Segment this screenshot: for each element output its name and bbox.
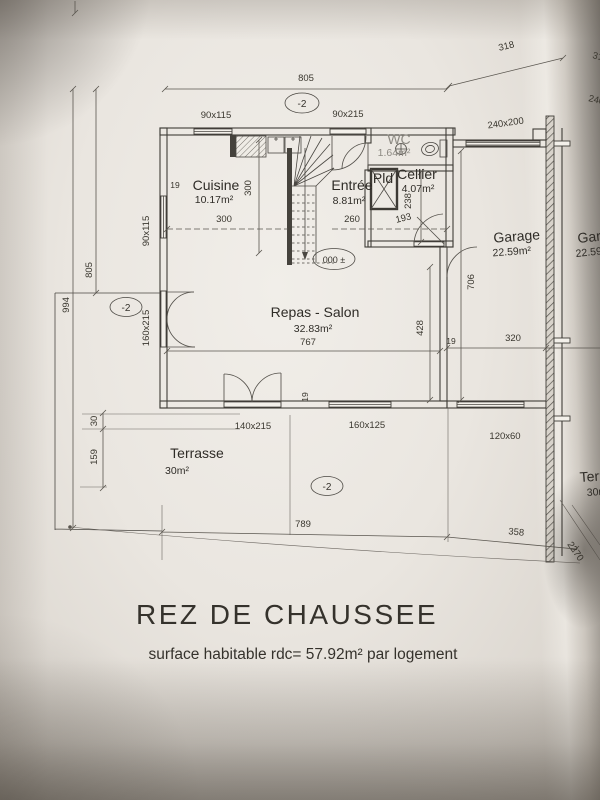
adjacent-terrasse: Terrasse: [579, 465, 600, 485]
dim-159: 159: [89, 449, 100, 465]
windows: [161, 129, 540, 407]
dim-789: 789: [295, 519, 311, 530]
area-salon: 32.83m²: [294, 323, 333, 335]
label-240x200: 240x200: [487, 116, 525, 132]
adjacent-garage-area: 22.59m²: [575, 244, 600, 260]
plan-title: REZ DE CHAUSSEE: [136, 599, 438, 630]
dim-767: 767: [300, 337, 316, 348]
dim-left-805: 805: [84, 262, 95, 278]
label-160x215: 160x215: [141, 310, 152, 346]
label-120x60: 120x60: [489, 431, 520, 442]
plan-subtitle: surface habitable rdc= 57.92m² par logem…: [149, 646, 459, 663]
room-cellier: Cellier: [397, 166, 437, 182]
area-entree: 8.81m²: [333, 195, 366, 207]
stairs: [292, 136, 334, 263]
label-140x215: 140x215: [235, 421, 271, 432]
level-left: -2: [122, 303, 131, 314]
dim-19-bottom: 19: [300, 392, 310, 402]
dim-19-cuisine: 19: [170, 180, 180, 190]
dim-193: 193: [394, 211, 412, 226]
floor-plan-drawing: -2 -2 -2 000 ± 805 318 805 994 300 260 3…: [0, 0, 600, 800]
adjacent-unit-labels: Garage 22.59m² 240x200 318 Terrasse 30m²: [575, 50, 600, 499]
adjacent-318: 318: [591, 50, 600, 65]
dim-300-v: 300: [243, 180, 254, 196]
dimension-lines: [70, 1, 600, 552]
room-pld: Pld: [373, 170, 393, 186]
dim-428: 428: [415, 320, 426, 336]
title-block: REZ DE CHAUSSEE surface habitable rdc= 5…: [136, 599, 458, 663]
room-entree: Entrée: [331, 177, 372, 193]
dim-260: 260: [344, 214, 360, 225]
adjacent-garage: Garage: [577, 225, 600, 246]
room-wc: WC: [387, 131, 410, 147]
dim-994: 994: [61, 297, 72, 313]
floor-plan-photo: -2 -2 -2 000 ± 805 318 805 994 300 260 3…: [0, 0, 600, 800]
dim-top-805: 805: [298, 73, 314, 84]
dim-320: 320: [505, 333, 521, 344]
label-90x215: 90x215: [332, 109, 363, 120]
dim-2270: 2270: [564, 540, 585, 564]
room-terrasse: Terrasse: [170, 445, 224, 461]
room-salon: Repas - Salon: [271, 304, 360, 320]
area-garage: 22.59m²: [492, 245, 532, 260]
label-90x115-top: 90x115: [201, 110, 231, 121]
adjacent-terrasse-area: 30m²: [586, 485, 600, 499]
dim-358: 358: [508, 526, 525, 538]
label-90x115-left: 90x115: [141, 216, 152, 246]
dim-318: 318: [497, 39, 515, 53]
dim-238: 238: [403, 193, 414, 209]
area-terrasse: 30m²: [165, 465, 189, 477]
room-garage: Garage: [493, 226, 541, 245]
adjacent-240x200: 240x200: [587, 93, 600, 112]
level-ground: 000 ±: [323, 255, 346, 265]
area-wc: 1.64m²: [378, 147, 411, 159]
room-cuisine: Cuisine: [193, 177, 240, 193]
area-cuisine: 10.17m²: [195, 194, 234, 206]
dim-19-garage: 19: [446, 336, 456, 346]
label-160x125: 160x125: [349, 420, 385, 431]
dim-300-h: 300: [216, 214, 232, 225]
level-top: -2: [298, 99, 307, 110]
level-terrace: -2: [323, 482, 332, 493]
area-cellier: 4.07m²: [402, 183, 435, 195]
dim-30: 30: [89, 416, 100, 427]
dim-706: 706: [466, 274, 477, 290]
